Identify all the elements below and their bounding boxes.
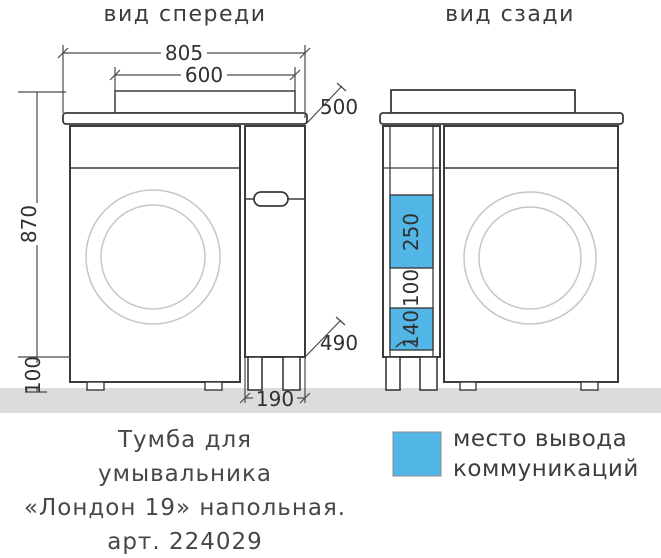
back-column-leg-right <box>420 357 437 390</box>
dim-label-190: 190 <box>256 387 294 411</box>
dim-label-250-cutout: 250 <box>399 213 423 251</box>
legend-color-swatch <box>392 431 442 477</box>
legend-label: место вывода коммуникаций <box>453 424 639 484</box>
back-washer-foot-right <box>581 382 598 390</box>
dim-label-600: 600 <box>181 63 227 87</box>
front-washer-foot-right <box>205 382 222 390</box>
caption-line-3: «Лондон 19» напольная. <box>24 491 346 525</box>
back-washer-niche <box>444 126 618 382</box>
product-caption: Тумба для умывальника «Лондон 19» наполь… <box>24 423 346 558</box>
front-column-leg-right <box>283 357 300 390</box>
caption-line-1: Тумба для <box>24 423 346 457</box>
back-view-title: вид сзади <box>445 2 575 27</box>
back-countertop <box>380 113 623 124</box>
dim-label-500: 500 <box>320 95 358 119</box>
caption-line-2: умывальника <box>24 457 346 491</box>
legend-label-line-1: место вывода <box>453 424 639 454</box>
dim-label-100-legs: 100 <box>21 356 45 394</box>
back-washer-foot-left <box>460 382 476 390</box>
front-washbasin-top <box>115 91 295 113</box>
front-column-leg-left <box>248 357 262 390</box>
front-view <box>63 91 307 390</box>
dim-label-490: 490 <box>320 331 358 355</box>
front-view-title: вид спереди <box>104 2 267 27</box>
back-column-leg-left <box>386 357 400 390</box>
front-countertop <box>63 113 307 124</box>
dim-label-140-cutout: 140 <box>399 310 423 348</box>
dim-label-870: 870 <box>17 203 41 245</box>
dim-label-805: 805 <box>161 41 207 65</box>
legend-swatch-rect <box>393 432 441 476</box>
back-splash-panel <box>391 90 575 113</box>
caption-article: арт. 224029 <box>24 525 346 558</box>
front-side-column <box>245 126 305 357</box>
front-washer-foot-left <box>87 382 104 390</box>
front-washer-niche <box>70 126 240 382</box>
legend-label-line-2: коммуникаций <box>453 454 639 484</box>
technical-drawing-sheet: вид спереди вид сзади 805 600 500 870 10… <box>0 0 661 558</box>
front-door-handle <box>254 192 288 206</box>
floor-strip <box>0 388 661 413</box>
dim-label-100-cutout: 100 <box>399 269 423 307</box>
